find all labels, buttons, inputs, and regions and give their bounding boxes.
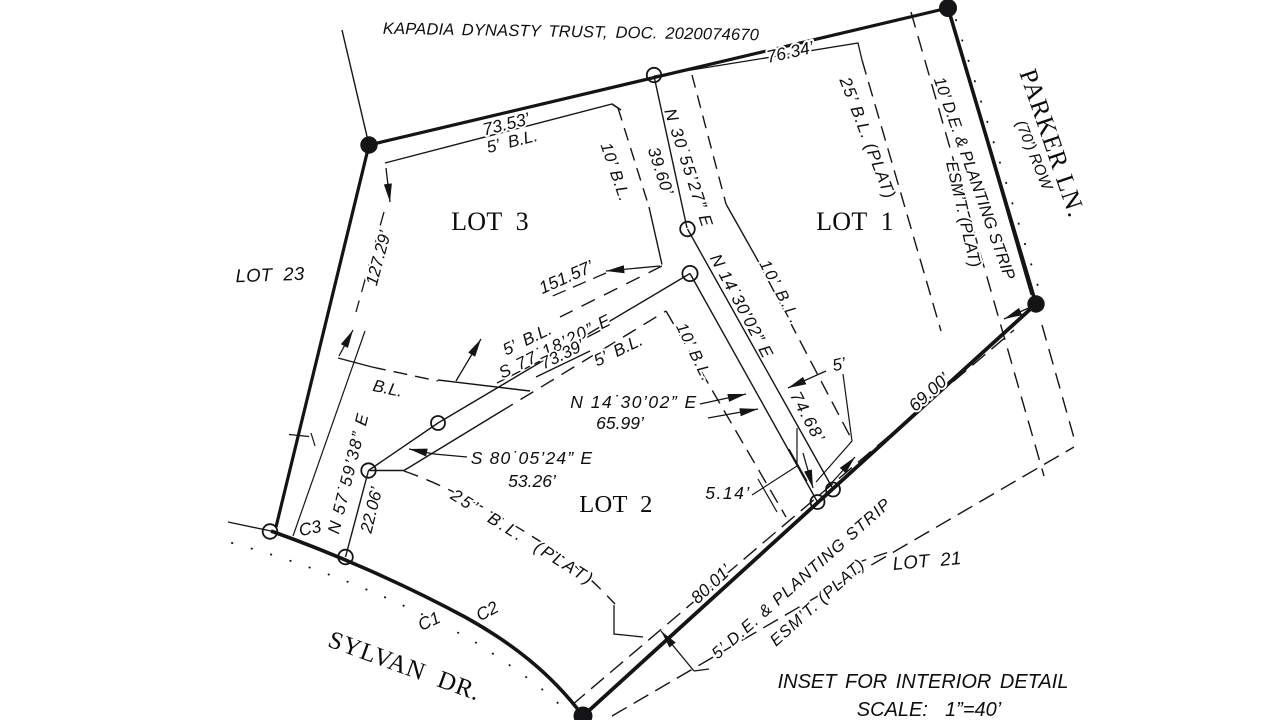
- svg-text:5’: 5’: [831, 354, 848, 375]
- svg-text:LOT 3: LOT 3: [451, 207, 529, 236]
- svg-text:LOT 1: LOT 1: [816, 207, 894, 236]
- svg-text:C3: C3: [297, 516, 323, 540]
- svg-text:B.L.: B.L.: [371, 376, 405, 401]
- svg-text:151.57’: 151.57’: [536, 256, 598, 298]
- svg-text:22.06’: 22.06’: [356, 485, 386, 536]
- svg-text:10’ B.L.: 10’ B.L.: [597, 140, 634, 204]
- svg-text:65.99’: 65.99’: [596, 413, 645, 433]
- svg-text:SYLVAN DR.: SYLVAN DR.: [325, 626, 485, 706]
- svg-text:25’ B.L. (PLAT): 25’ B.L. (PLAT): [446, 485, 598, 590]
- svg-text:5’ B.L.: 5’ B.L.: [591, 331, 646, 371]
- svg-text:LOT 2: LOT 2: [579, 491, 652, 518]
- svg-text:KAPADIA DYNASTY TRUST, DOC. 20: KAPADIA DYNASTY TRUST, DOC. 2020074670: [383, 20, 760, 45]
- svg-text:25’ B.L. (PLAT): 25’ B.L. (PLAT): [835, 74, 899, 202]
- svg-text:INSET FOR INTERIOR DETAIL: INSET FOR INTERIOR DETAIL: [778, 671, 1069, 693]
- svg-text:5.14’: 5.14’: [705, 483, 750, 503]
- svg-text:S 80˙05’24” E: S 80˙05’24” E: [471, 448, 594, 468]
- svg-text:127.29’: 127.29’: [362, 229, 395, 288]
- svg-text:39.60’: 39.60’: [644, 145, 677, 198]
- svg-text:69.00’: 69.00’: [905, 368, 955, 416]
- svg-text:C1: C1: [415, 607, 444, 635]
- svg-text:LOT 21: LOT 21: [892, 547, 963, 574]
- svg-text:N 14˙30’02” E: N 14˙30’02” E: [570, 392, 697, 412]
- svg-text:LOT 23: LOT 23: [235, 263, 305, 286]
- svg-text:76.34’: 76.34’: [765, 37, 817, 67]
- svg-text:SCALE: 1”=40’: SCALE: 1”=40’: [857, 699, 1002, 720]
- svg-text:C2: C2: [472, 597, 501, 625]
- svg-text:53.26’: 53.26’: [508, 471, 557, 491]
- svg-text:10’ B.L.: 10’ B.L.: [672, 320, 716, 385]
- svg-text:10’ B.L.: 10’ B.L.: [755, 257, 804, 328]
